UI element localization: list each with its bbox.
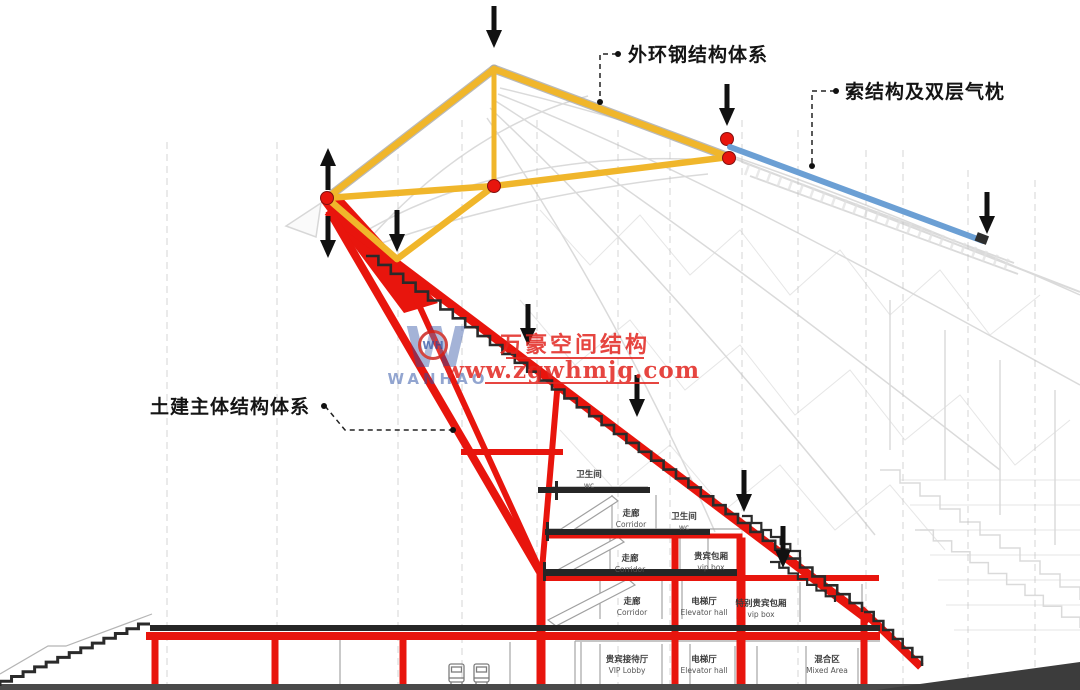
watermark-line2: www.zgwhmjg.com [443,357,700,384]
room-label: 电梯厅Elevator hall [681,596,728,617]
outer-ring-steel-truss [321,69,736,259]
watermark-line1: 万豪空间结构 [499,332,650,358]
outer-ring-label: 外环钢结构体系 [628,43,768,66]
room-label: 贵宾接待厅VIP Lobby [606,654,649,675]
civil-structure-label: 土建主体结构体系 [150,395,310,418]
up-arrow-icon [320,148,336,190]
svg-text:WH: WH [422,339,443,352]
truck-icon [474,664,489,685]
room-label: 走廊Corridor [615,553,646,574]
room-label: 电梯厅Elevator hall [681,654,728,675]
cable-structure [730,147,989,245]
down-arrow-icon [979,192,995,234]
room-label: 走廊Corridor [617,596,648,617]
room-label: 贵宾包厢vip box [694,551,729,572]
structure-section-diagram: W WH WANHAO 万豪空间结构 www.zgwhmjg.com 外环钢结构… [0,0,1080,690]
room-label: 混合区Mixed Area [806,654,848,675]
watermark: W WH WANHAO 万豪空间结构 www.zgwhmjg.com [388,316,701,388]
room-label: 走廊Corridor [616,508,647,529]
down-arrow-icon [486,6,502,48]
red-civil-structure [150,193,918,686]
down-arrow-icon [736,470,752,512]
cable-label: 索结构及双层气枕 [845,80,1005,103]
diagram-canvas: W WH WANHAO 万豪空间结构 www.zgwhmjg.com 外环钢结构… [0,0,1080,690]
down-arrow-icon [719,84,735,126]
